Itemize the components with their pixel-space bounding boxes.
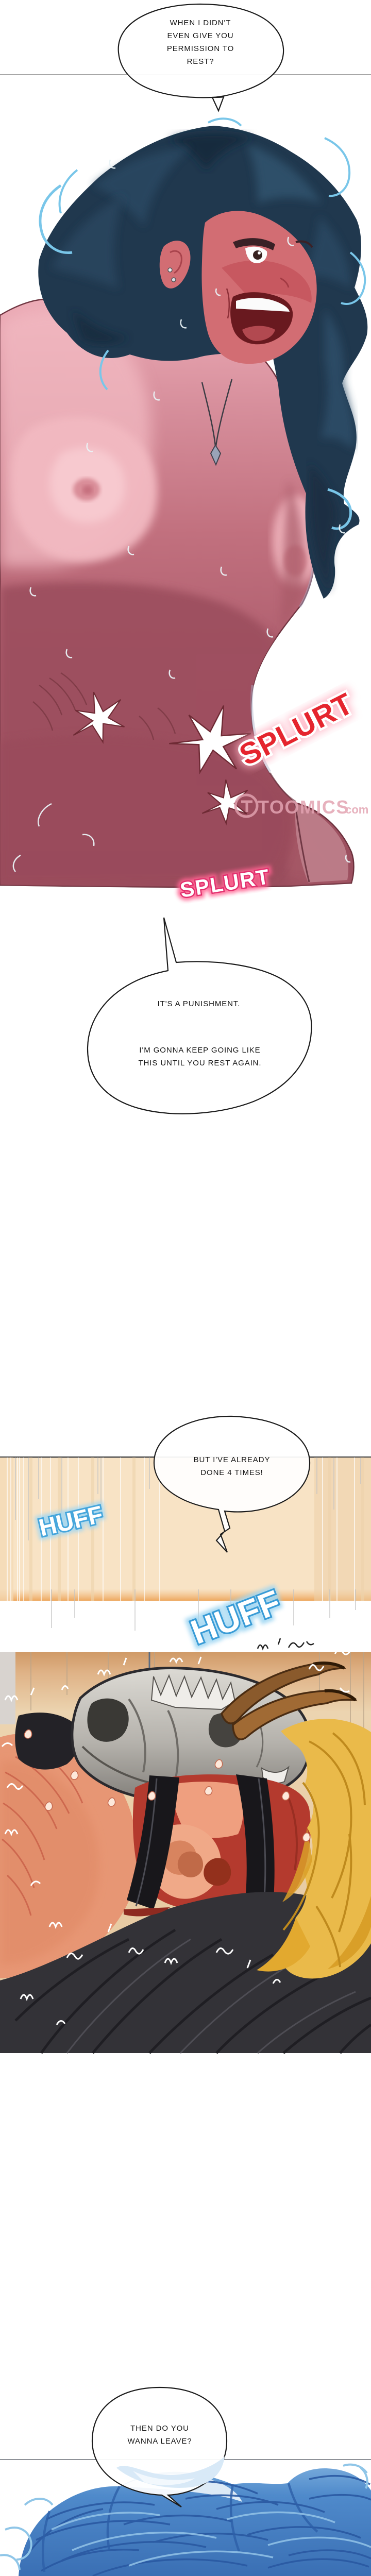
svg-text:EVEN GIVE YOU: EVEN GIVE YOU [167,31,234,40]
svg-text:PERMISSION TO: PERMISSION TO [167,44,234,53]
svg-text:IT'S A PUNISHMENT.: IT'S A PUNISHMENT. [158,999,241,1008]
svg-text:.com: .com [342,803,368,816]
svg-text:BUT I'VE ALREADY: BUT I'VE ALREADY [194,1455,271,1464]
svg-text:DONE 4 TIMES!: DONE 4 TIMES! [200,1468,263,1477]
svg-text:THEN DO YOU: THEN DO YOU [130,2424,189,2433]
svg-text:TOOMICS: TOOMICS [258,796,349,818]
svg-text:REST?: REST? [187,57,214,66]
svg-text:WHEN I DIDN'T: WHEN I DIDN'T [170,19,231,27]
svg-text:WANNA LEAVE?: WANNA LEAVE? [127,2437,192,2446]
svg-text:I'M GONNA KEEP GOING LIKE: I'M GONNA KEEP GOING LIKE [139,1046,260,1055]
svg-text:THIS UNTIL YOU REST AGAIN.: THIS UNTIL YOU REST AGAIN. [138,1059,261,1067]
